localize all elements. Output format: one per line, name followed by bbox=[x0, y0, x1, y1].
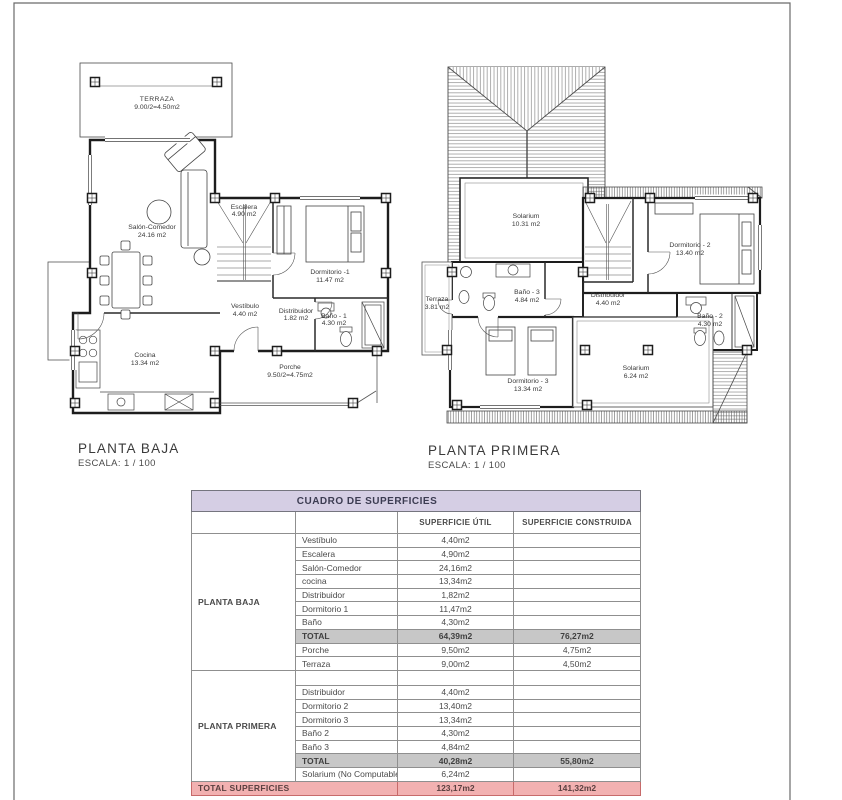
cell-construida bbox=[514, 534, 641, 548]
cell-construida bbox=[514, 670, 641, 685]
grand-total-construida: 141,32m2 bbox=[514, 781, 641, 795]
plan1-planta-baja: TERRAZA 9.00/2=4.50m2 Salón-Comedor 24.1… bbox=[48, 63, 391, 413]
group-cell: PLANTA PRIMERA bbox=[192, 670, 296, 781]
cell-name: Porche bbox=[296, 643, 398, 657]
cell-construida bbox=[514, 726, 641, 740]
plan2-solarium2 bbox=[573, 317, 713, 407]
svg-text:13.34 m2: 13.34 m2 bbox=[131, 360, 160, 367]
label-salon: Salón-Comedor bbox=[128, 224, 176, 231]
cell-construida bbox=[514, 713, 641, 727]
cell-util bbox=[398, 670, 514, 685]
cell-util: 11,47m2 bbox=[398, 602, 514, 616]
label-solarium2: Solarium bbox=[623, 365, 650, 372]
plan2-scale: ESCALA: 1 / 100 bbox=[428, 460, 561, 471]
svg-text:1.82 m2: 1.82 m2 bbox=[284, 315, 309, 322]
cell-util: 13,34m2 bbox=[398, 713, 514, 727]
header-empty-2 bbox=[296, 512, 398, 534]
header-empty-1 bbox=[192, 512, 296, 534]
cell-name: Baño 3 bbox=[296, 740, 398, 754]
cell-construida bbox=[514, 740, 641, 754]
label-solarium1: Solarium bbox=[513, 213, 540, 220]
cell-util: 4,30m2 bbox=[398, 616, 514, 630]
svg-text:24.16 m2: 24.16 m2 bbox=[138, 232, 167, 239]
group-cell: PLANTA BAJA bbox=[192, 534, 296, 671]
label-escalera: Escalera bbox=[231, 204, 258, 211]
cell-name: Terraza bbox=[296, 657, 398, 671]
cell-name: Baño bbox=[296, 616, 398, 630]
header-superficie-util: SUPERFICIE ÚTIL bbox=[398, 512, 514, 534]
cell-construida bbox=[514, 588, 641, 602]
grand-total-label: TOTAL SUPERFICIES bbox=[192, 781, 398, 795]
cell-util: 13,34m2 bbox=[398, 575, 514, 589]
label-vestibulo: Vestíbulo bbox=[231, 303, 259, 310]
cell-construida bbox=[514, 602, 641, 616]
svg-text:13.40 m2: 13.40 m2 bbox=[676, 250, 705, 257]
plan1-title-block: PLANTA BAJA ESCALA: 1 / 100 bbox=[78, 441, 179, 469]
svg-text:11.47 m2: 11.47 m2 bbox=[316, 277, 344, 284]
svg-text:3.81 m2: 3.81 m2 bbox=[425, 304, 450, 311]
plan1-scale: ESCALA: 1 / 100 bbox=[78, 458, 179, 469]
header-superficie-construida: SUPERFICIE CONSTRUIDA bbox=[514, 512, 641, 534]
svg-text:9.50/2=4.75m2: 9.50/2=4.75m2 bbox=[267, 372, 313, 379]
cell-name: Baño 2 bbox=[296, 726, 398, 740]
label-bano2: Baño - 2 bbox=[697, 313, 723, 320]
cell-name: Vestíbulo bbox=[296, 534, 398, 548]
label-dormitorio2: Dormitorio - 2 bbox=[669, 242, 710, 249]
table-header-row: SUPERFICIE ÚTIL SUPERFICIE CONSTRUIDA bbox=[192, 512, 641, 534]
label-dormitorio3: Dormitorio - 3 bbox=[507, 378, 548, 385]
cell-util: 4,30m2 bbox=[398, 726, 514, 740]
cell-util: 9,50m2 bbox=[398, 643, 514, 657]
cell-construida: 76,27m2 bbox=[514, 629, 641, 643]
cell-util: 6,24m2 bbox=[398, 768, 514, 782]
table-title-row: CUADRO DE SUPERFICIES bbox=[192, 491, 641, 512]
svg-text:4.84 m2: 4.84 m2 bbox=[515, 297, 540, 304]
svg-text:4.30 m2: 4.30 m2 bbox=[322, 320, 347, 327]
svg-text:13.34 m2: 13.34 m2 bbox=[514, 386, 543, 393]
table-title: CUADRO DE SUPERFICIES bbox=[192, 496, 592, 507]
cell-name: Distribuidor bbox=[296, 685, 398, 699]
cell-name: Dormitorio 1 bbox=[296, 602, 398, 616]
surface-table-body: PLANTA BAJAVestíbulo4,40m2Escalera4,90m2… bbox=[192, 534, 641, 796]
plan2-title: PLANTA PRIMERA bbox=[428, 443, 561, 458]
cell-construida: 55,80m2 bbox=[514, 754, 641, 768]
cell-util: 1,82m2 bbox=[398, 588, 514, 602]
cell-construida bbox=[514, 685, 641, 699]
drawing-sheet: TERRAZA 9.00/2=4.50m2 Salón-Comedor 24.1… bbox=[0, 0, 842, 800]
cell-construida: 4,50m2 bbox=[514, 657, 641, 671]
table-row: PLANTA BAJAVestíbulo4,40m2 bbox=[192, 534, 641, 548]
cell-util: 4,90m2 bbox=[398, 547, 514, 561]
cell-name bbox=[296, 670, 398, 685]
surface-table: CUADRO DE SUPERFICIES SUPERFICIE ÚTIL SU… bbox=[191, 490, 641, 796]
cell-name: cocina bbox=[296, 575, 398, 589]
label-dormitorio1: Dormitorio -1 bbox=[310, 269, 349, 276]
svg-text:6.24 m2: 6.24 m2 bbox=[624, 373, 649, 380]
cell-name: Dormitorio 3 bbox=[296, 713, 398, 727]
cell-util: 4,40m2 bbox=[398, 685, 514, 699]
cell-name: Solarium (No Computable) bbox=[296, 768, 398, 782]
plan2-planta-primera: Solarium 10.31 m2 Dormitorio - 2 13.40 m… bbox=[422, 67, 764, 423]
cell-util: 40,28m2 bbox=[398, 754, 514, 768]
svg-text:10.31 m2: 10.31 m2 bbox=[512, 221, 541, 228]
cell-construida: 4,75m2 bbox=[514, 643, 641, 657]
cell-construida bbox=[514, 699, 641, 713]
cell-name: TOTAL bbox=[296, 629, 398, 643]
label-bano3: Baño - 3 bbox=[514, 289, 540, 296]
cell-util: 4,84m2 bbox=[398, 740, 514, 754]
cell-name: Distribuidor bbox=[296, 588, 398, 602]
cell-util: 24,16m2 bbox=[398, 561, 514, 575]
cell-name: TOTAL bbox=[296, 754, 398, 768]
svg-text:9.00/2=4.50m2: 9.00/2=4.50m2 bbox=[134, 104, 180, 111]
label-distribuidor1: Distribuidor bbox=[279, 308, 314, 315]
label-porche: Porche bbox=[279, 364, 301, 371]
label-cocina: Cocina bbox=[134, 352, 155, 359]
cell-util: 13,40m2 bbox=[398, 699, 514, 713]
cell-name: Dormitorio 2 bbox=[296, 699, 398, 713]
svg-text:4.30 m2: 4.30 m2 bbox=[698, 321, 723, 328]
label-terraza2: Terraza bbox=[426, 296, 449, 303]
plan1-title: PLANTA BAJA bbox=[78, 441, 179, 456]
svg-text:4.40 m2: 4.40 m2 bbox=[596, 300, 621, 307]
spacer-row: PLANTA PRIMERA bbox=[192, 670, 641, 685]
svg-text:4.40 m2: 4.40 m2 bbox=[233, 311, 258, 318]
plan2-title-block: PLANTA PRIMERA ESCALA: 1 / 100 bbox=[428, 443, 561, 471]
cell-util: 4,40m2 bbox=[398, 534, 514, 548]
cell-construida bbox=[514, 575, 641, 589]
plan1-bedroom-furniture bbox=[277, 206, 364, 262]
label-distribuidor2: Distribuidor bbox=[591, 292, 626, 299]
cell-construida bbox=[514, 616, 641, 630]
svg-text:4.90 m2: 4.90 m2 bbox=[232, 211, 257, 218]
cell-name: Escalera bbox=[296, 547, 398, 561]
cell-construida bbox=[514, 768, 641, 782]
label-terraza: TERRAZA bbox=[140, 96, 175, 103]
cell-util: 64,39m2 bbox=[398, 629, 514, 643]
label-bano1: Baño - 1 bbox=[321, 313, 347, 320]
cell-util: 9,00m2 bbox=[398, 657, 514, 671]
grand-total-util: 123,17m2 bbox=[398, 781, 514, 795]
cell-name: Salón-Comedor bbox=[296, 561, 398, 575]
cell-construida bbox=[514, 561, 641, 575]
cell-construida bbox=[514, 547, 641, 561]
grand-total-row: TOTAL SUPERFICIES123,17m2141,32m2 bbox=[192, 781, 641, 795]
surface-table-container: CUADRO DE SUPERFICIES SUPERFICIE ÚTIL SU… bbox=[191, 490, 641, 796]
